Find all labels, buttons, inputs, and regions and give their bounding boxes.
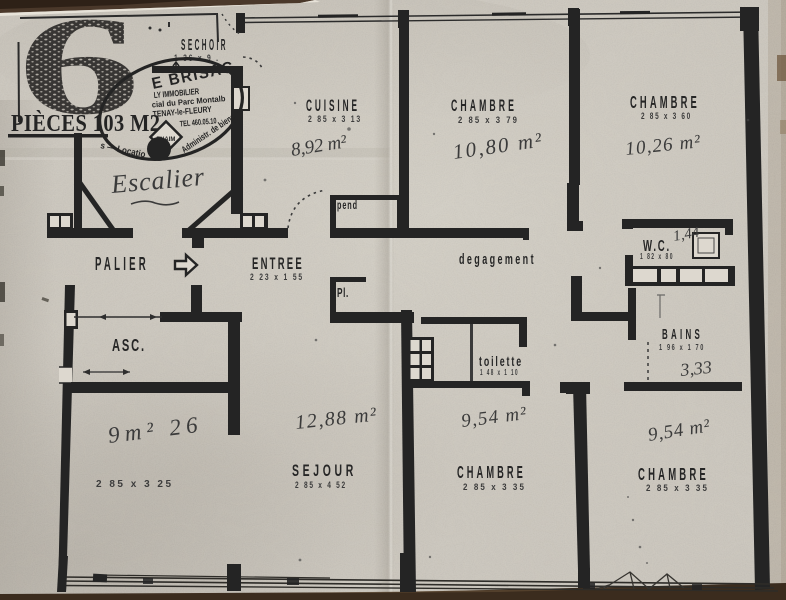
svg-text:2 85 x 3 25: 2 85 x 3 25 [96,479,174,490]
svg-text:ENTREE: ENTREE [252,254,304,273]
svg-text:degagement: degagement [459,251,536,268]
svg-text:3,33: 3,33 [678,357,712,380]
svg-text:PIÈCES 103 M2: PIÈCES 103 M2 [11,109,160,136]
svg-text:SEJOUR: SEJOUR [292,460,357,479]
svg-text:CHAMBRE: CHAMBRE [457,463,526,483]
svg-text:2 85 x 3 35: 2 85 x 3 35 [646,482,709,493]
svg-text:CUISINE: CUISINE [306,96,360,115]
svg-text:1 48 x 1 10: 1 48 x 1 10 [480,369,519,378]
svg-text:1 82 x 80: 1 82 x 80 [640,253,674,262]
svg-text:1 96 x 1 70: 1 96 x 1 70 [659,342,705,353]
svg-text:pend: pend [337,199,358,212]
svg-text:ASC.: ASC. [112,335,146,355]
svg-text:2 23 x 1 55: 2 23 x 1 55 [250,272,304,282]
svg-text:2 85 x 3 13: 2 85 x 3 13 [308,114,362,124]
svg-text:SECHOIR: SECHOIR [181,36,228,54]
svg-text:BAINS: BAINS [662,327,703,343]
svg-text:toilette: toilette [479,354,523,370]
svg-text:CHAMBRE: CHAMBRE [451,96,517,115]
svg-text:PALIER: PALIER [95,255,149,275]
svg-text:Pl.: Pl. [337,286,349,300]
svg-text:2 85 x 3 35: 2 85 x 3 35 [463,481,526,492]
svg-text:2 85 x 3 79: 2 85 x 3 79 [458,114,519,125]
svg-text:2 85 x 4 52: 2 85 x 4 52 [295,480,347,490]
svg-text:2 85 x 3 60: 2 85 x 3 60 [641,111,692,122]
